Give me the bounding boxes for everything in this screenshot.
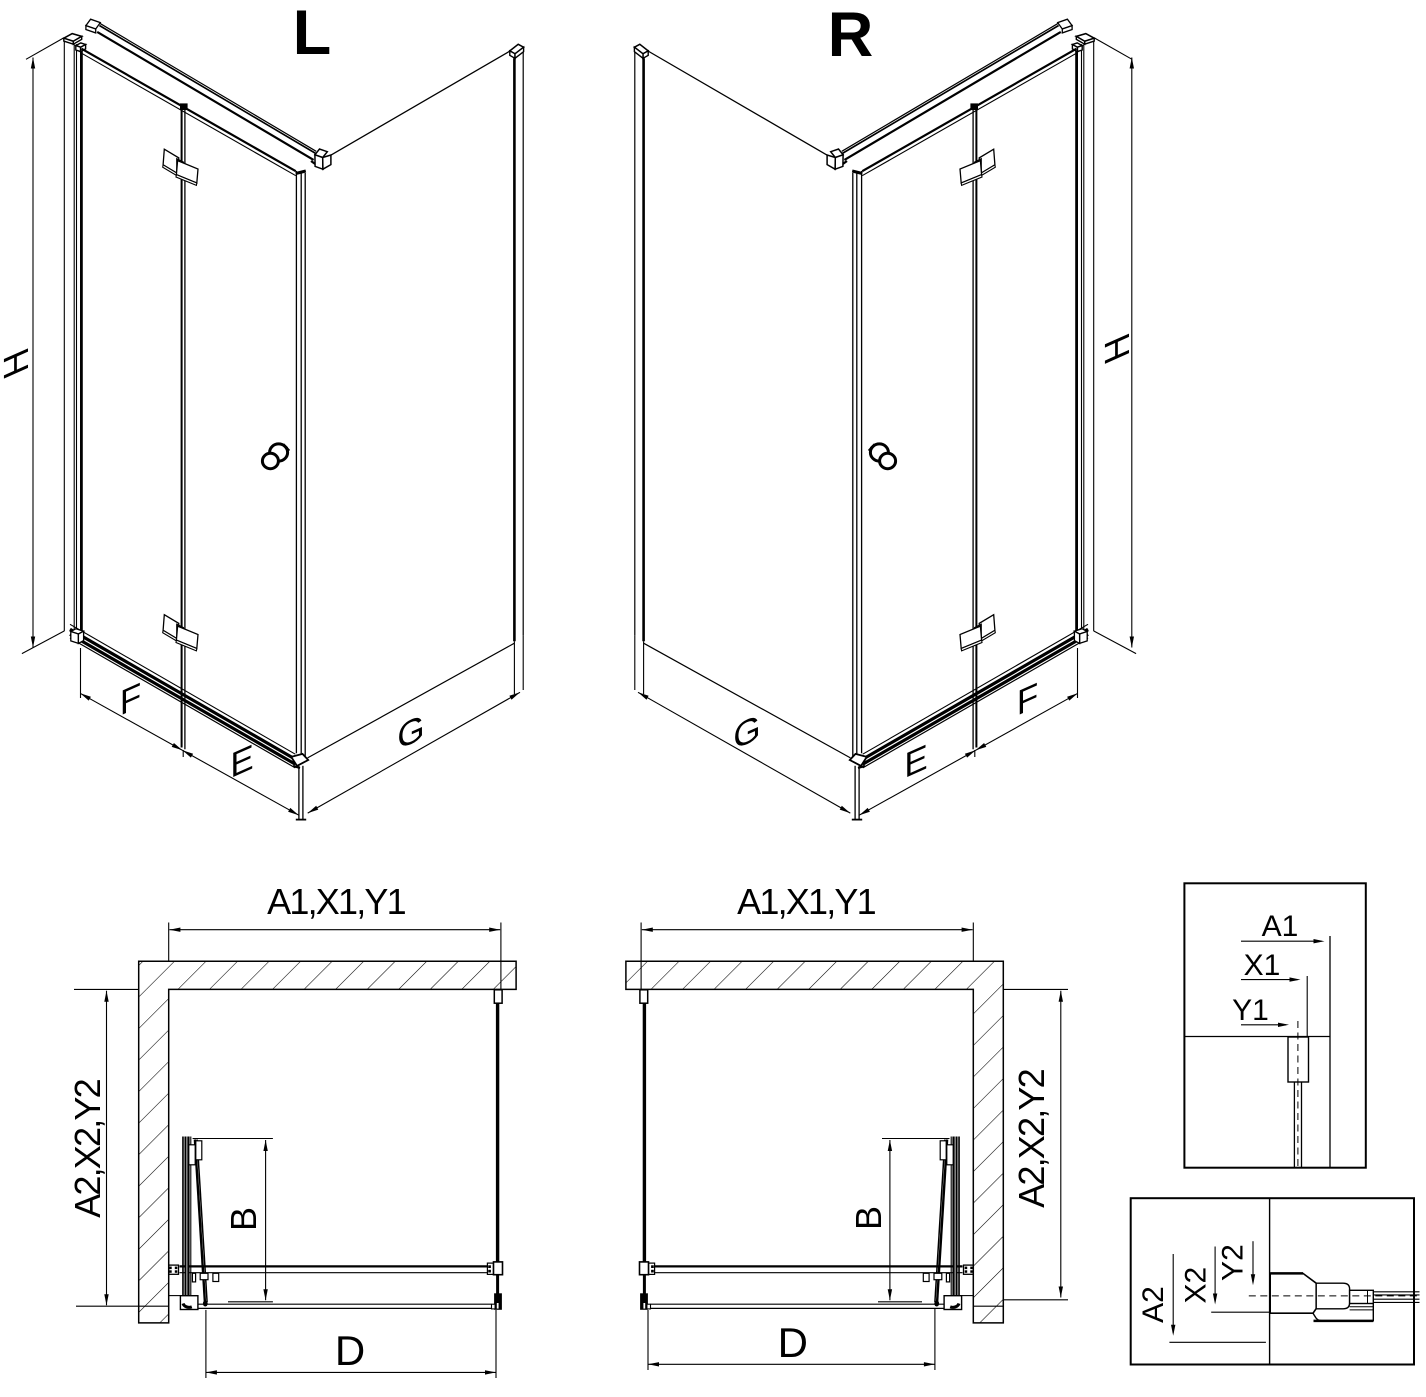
- svg-text:A2,X2,Y2: A2,X2,Y2: [67, 1079, 108, 1217]
- svg-text:Y2: Y2: [1217, 1244, 1250, 1281]
- svg-text:A1,X1,Y1: A1,X1,Y1: [267, 881, 405, 922]
- svg-text:D: D: [335, 1327, 365, 1374]
- svg-text:D: D: [778, 1319, 808, 1366]
- svg-text:L: L: [293, 0, 331, 68]
- svg-text:X2: X2: [1179, 1267, 1212, 1304]
- svg-text:X1: X1: [1244, 949, 1281, 982]
- svg-text:Y1: Y1: [1232, 994, 1269, 1027]
- svg-text:A2: A2: [1137, 1286, 1170, 1323]
- svg-text:A1,X1,Y1: A1,X1,Y1: [737, 881, 875, 922]
- svg-text:A1: A1: [1262, 910, 1299, 943]
- svg-text:R: R: [828, 0, 874, 70]
- svg-text:B: B: [223, 1207, 264, 1231]
- svg-text:B: B: [848, 1206, 889, 1230]
- svg-text:A2,X2,Y2: A2,X2,Y2: [1011, 1069, 1052, 1207]
